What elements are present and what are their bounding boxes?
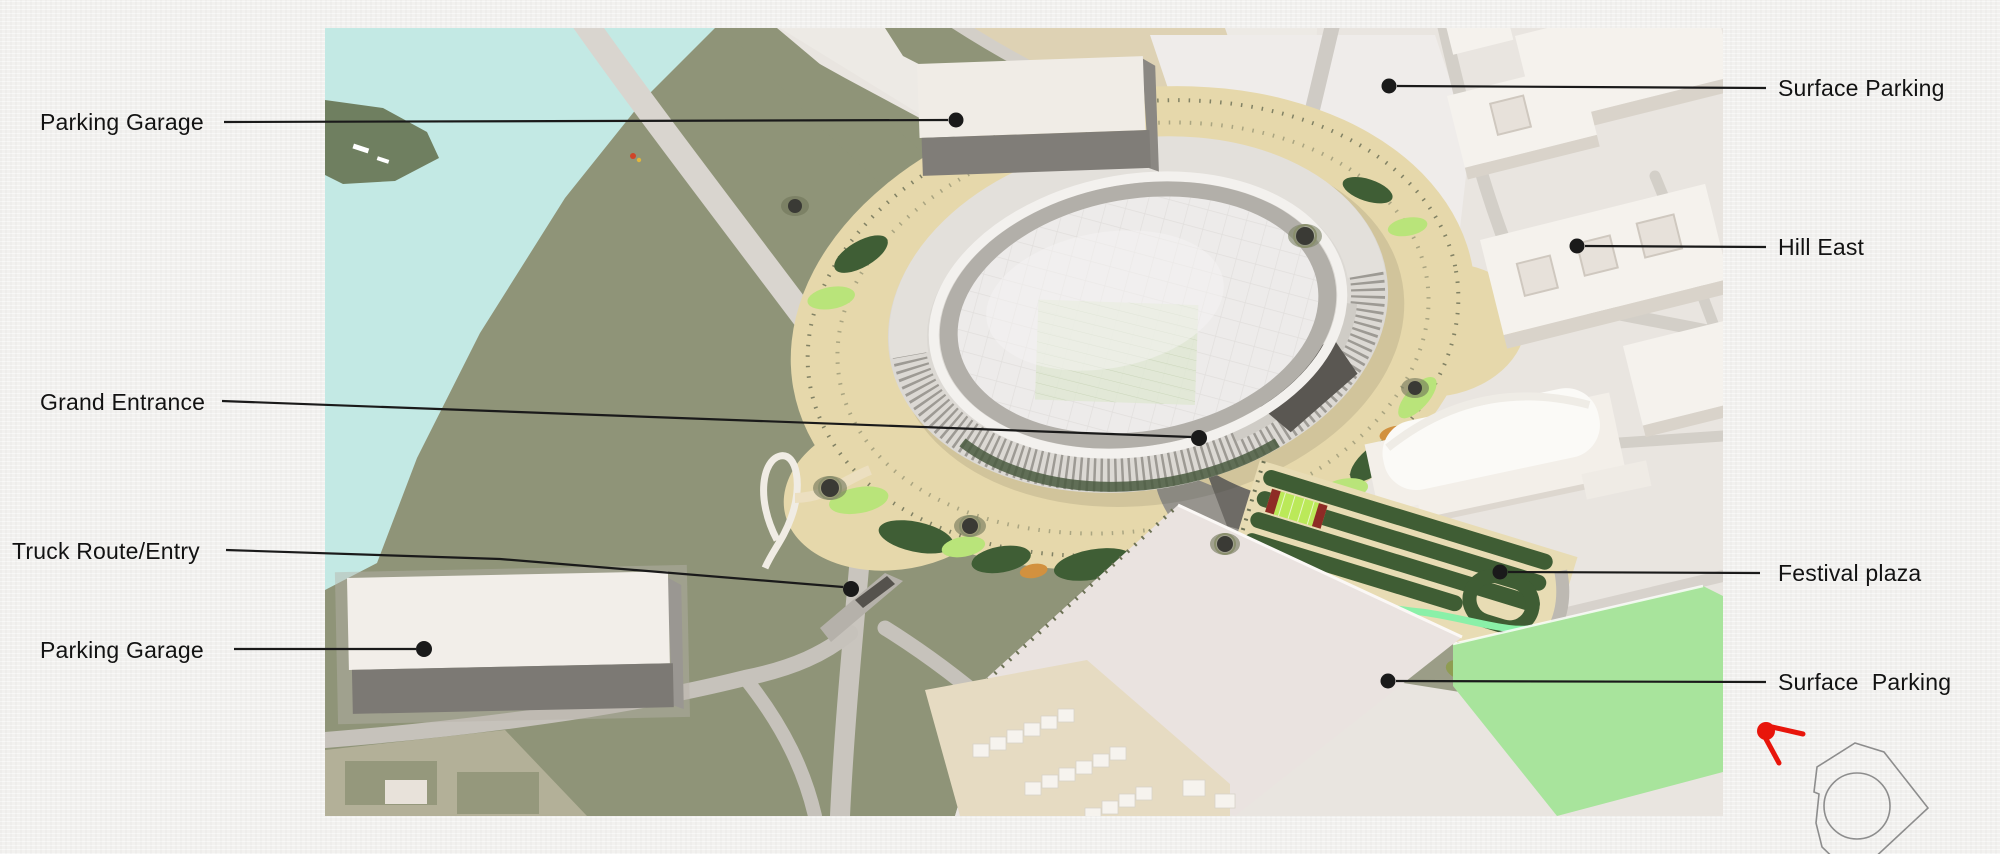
label-hill-east: Hill East bbox=[1778, 233, 1864, 261]
label-parking-garage-south: Parking Garage bbox=[40, 636, 204, 664]
parking-garage-south-building bbox=[335, 565, 690, 724]
label-parking-garage-north: Parking Garage bbox=[40, 108, 204, 136]
small-building bbox=[385, 780, 427, 804]
site-outline-logo-icon bbox=[1814, 743, 1928, 854]
site-rendering bbox=[325, 28, 1723, 816]
label-surface-parking-north: Surface Parking bbox=[1778, 74, 1945, 102]
label-surface-parking-south: Surface Parking bbox=[1778, 668, 1951, 696]
green-block bbox=[457, 772, 539, 814]
north-pin-icon bbox=[1757, 722, 1803, 763]
label-grand-entrance: Grand Entrance bbox=[40, 388, 205, 416]
label-festival-plaza: Festival plaza bbox=[1778, 559, 1921, 587]
parking-garage-north-building bbox=[917, 56, 1159, 180]
plaza-red-accent bbox=[637, 158, 641, 162]
plaza-red-accent bbox=[630, 153, 636, 159]
site-plan-page: Parking Garage Surface Parking Hill East… bbox=[0, 0, 2000, 854]
site-rendering-svg bbox=[325, 28, 1723, 816]
label-truck-route-entry: Truck Route/Entry bbox=[12, 537, 200, 565]
